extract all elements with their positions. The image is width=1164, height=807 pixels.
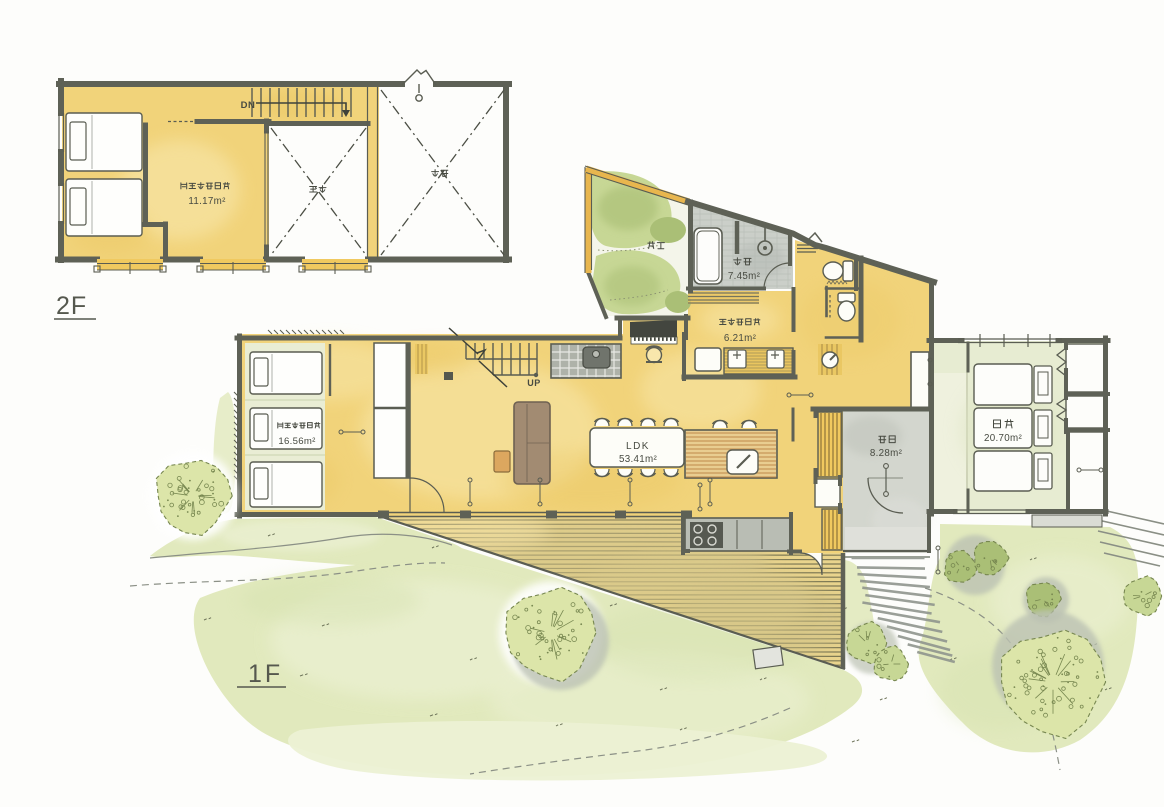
svg-text:11.17m²: 11.17m² — [188, 196, 226, 207]
svg-text:1F: 1F — [248, 660, 283, 688]
svg-text:2F: 2F — [56, 292, 87, 320]
svg-text:53.41m²: 53.41m² — [619, 454, 657, 465]
svg-text:16.56m²: 16.56m² — [278, 436, 316, 447]
svg-text:DN: DN — [241, 100, 256, 111]
svg-text:6.21m²: 6.21m² — [724, 333, 757, 344]
svg-text:20.70m²: 20.70m² — [984, 433, 1022, 444]
svg-text:7.45m²: 7.45m² — [728, 271, 761, 282]
svg-text:UP: UP — [527, 378, 541, 388]
svg-text:8.28m²: 8.28m² — [870, 448, 903, 459]
svg-text:LDK: LDK — [626, 441, 650, 452]
